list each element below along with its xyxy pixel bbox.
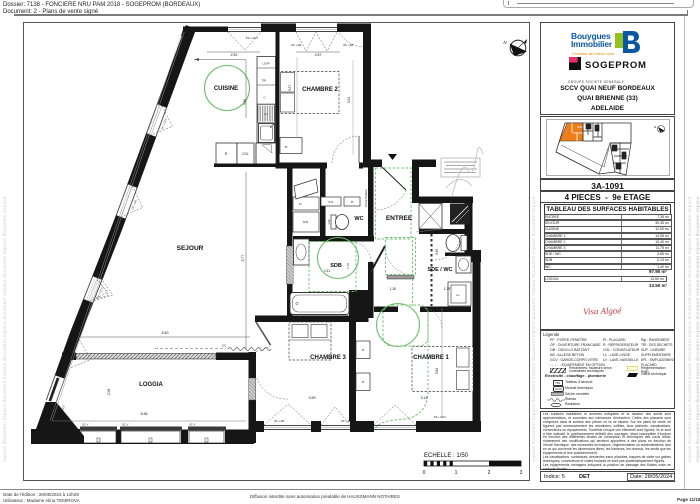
svg-text:1.79: 1.79 bbox=[444, 287, 450, 291]
svg-text:OF + AB: OF + AB bbox=[341, 419, 351, 423]
svg-text:Pl: Pl bbox=[299, 202, 302, 206]
svg-text:N: N bbox=[654, 125, 656, 129]
svg-text:GC V: GC V bbox=[82, 423, 89, 427]
svg-text:3.27: 3.27 bbox=[288, 85, 292, 91]
svg-text:5.50: 5.50 bbox=[162, 331, 169, 335]
svg-text:2.28: 2.28 bbox=[107, 389, 111, 395]
svg-text:3.19: 3.19 bbox=[435, 249, 439, 255]
svg-text:3.51: 3.51 bbox=[349, 371, 353, 377]
svg-text:CHAMBRE 1: CHAMBRE 1 bbox=[413, 355, 449, 361]
svg-text:1.30: 1.30 bbox=[390, 287, 396, 291]
svg-text:SEJOUR: SEJOUR bbox=[177, 245, 204, 252]
svg-text:0: 0 bbox=[423, 470, 426, 476]
svg-text:Pl: Pl bbox=[362, 380, 365, 384]
svg-text:6.36: 6.36 bbox=[141, 412, 148, 416]
svg-text:2.31: 2.31 bbox=[324, 269, 330, 273]
svg-text:OF + AB: OF + AB bbox=[274, 419, 284, 423]
svg-text:CUISINE: CUISINE bbox=[214, 86, 238, 92]
svg-text:CHAMBRE 2: CHAMBRE 2 bbox=[302, 87, 338, 93]
svg-text:1: 1 bbox=[455, 470, 458, 476]
svg-text:3.94: 3.94 bbox=[347, 97, 351, 103]
svg-text:STL: STL bbox=[328, 200, 334, 204]
svg-text:CGL: CGL bbox=[242, 152, 249, 156]
svg-text:GC V: GC V bbox=[189, 423, 196, 427]
svg-text:2.52: 2.52 bbox=[231, 53, 238, 57]
svg-text:3.84: 3.84 bbox=[435, 368, 439, 374]
svg-text:Pl: Pl bbox=[362, 348, 365, 352]
svg-text:PF + GCV: PF + GCV bbox=[246, 36, 258, 40]
svg-text:3.14: 3.14 bbox=[421, 396, 428, 400]
svg-text:LOUP: LOUP bbox=[262, 62, 269, 66]
svg-text:Pl: Pl bbox=[285, 145, 288, 149]
svg-text:ECHELLE : 1/50: ECHELLE : 1/50 bbox=[424, 453, 469, 459]
svg-text:5.77: 5.77 bbox=[241, 255, 245, 262]
svg-text:CHAMBRE 3: CHAMBRE 3 bbox=[310, 355, 346, 361]
svg-text:Porte Palière: Porte Palière bbox=[364, 189, 368, 207]
svg-text:Pl: Pl bbox=[351, 200, 354, 204]
svg-text:3.36: 3.36 bbox=[243, 99, 247, 105]
svg-text:LOGGIA: LOGGIA bbox=[139, 382, 163, 388]
svg-text:92: 92 bbox=[289, 178, 293, 182]
svg-text:SDE / WC: SDE / WC bbox=[427, 267, 452, 273]
svg-text:1.72: 1.72 bbox=[346, 263, 350, 269]
svg-text:C: C bbox=[263, 96, 265, 100]
svg-text:MTe: MTe bbox=[303, 220, 309, 224]
svg-text:OF + AB: OF + AB bbox=[291, 43, 301, 47]
svg-text:1.26: 1.26 bbox=[327, 219, 331, 225]
svg-text:3.59: 3.59 bbox=[309, 396, 316, 400]
svg-text:2.87: 2.87 bbox=[315, 53, 322, 57]
svg-text:SDB: SDB bbox=[330, 263, 342, 269]
svg-text:GC V: GC V bbox=[122, 423, 129, 427]
svg-text:LL: LL bbox=[456, 293, 460, 297]
svg-text:WC: WC bbox=[354, 216, 363, 222]
svg-text:PF + GCV: PF + GCV bbox=[434, 415, 446, 419]
svg-text:2: 2 bbox=[488, 470, 491, 476]
svg-text:TRI: TRI bbox=[262, 79, 266, 83]
svg-text:LV: LV bbox=[265, 112, 268, 116]
svg-text:ENTREE: ENTREE bbox=[386, 215, 413, 222]
svg-text:OF + AB: OF + AB bbox=[343, 43, 353, 47]
svg-text:3: 3 bbox=[520, 470, 523, 476]
